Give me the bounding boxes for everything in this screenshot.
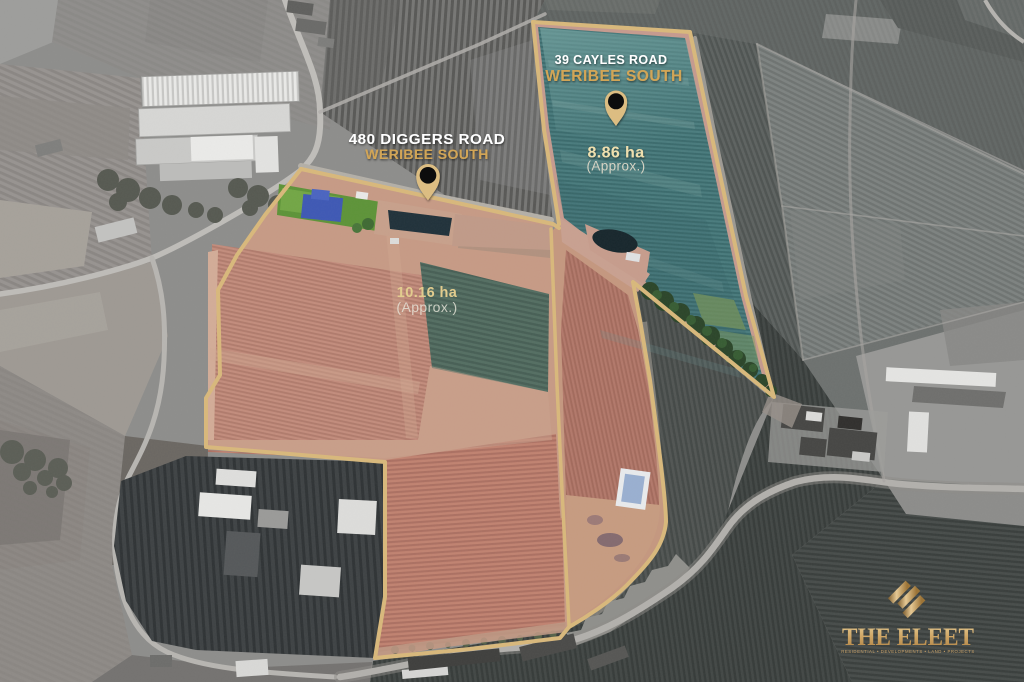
svg-text:39 CAYLES ROAD: 39 CAYLES ROAD bbox=[555, 53, 668, 67]
svg-text:WERIBEE SOUTH: WERIBEE SOUTH bbox=[545, 68, 682, 85]
svg-text:WERIBEE SOUTH: WERIBEE SOUTH bbox=[365, 146, 488, 162]
svg-text:RESIDENTIAL • DEVELOPMENTS: RESIDENTIAL • DEVELOPMENTS • LAND • PROJ… bbox=[841, 649, 975, 654]
svg-text:THE ELEET: THE ELEET bbox=[842, 624, 974, 651]
svg-text:(Approx.): (Approx.) bbox=[586, 159, 645, 174]
svg-text:(Approx.): (Approx.) bbox=[396, 299, 457, 315]
